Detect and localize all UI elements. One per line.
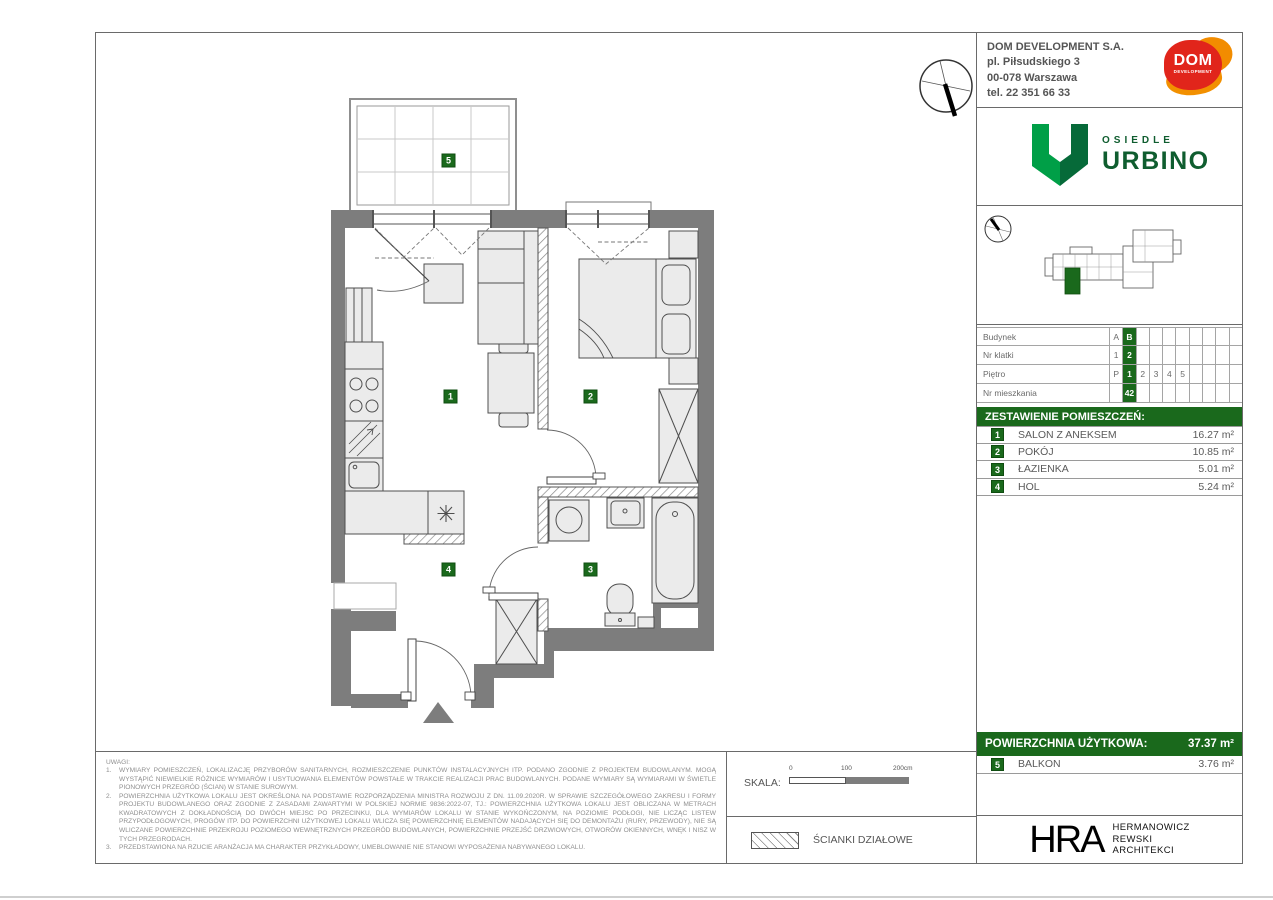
north-compass-icon <box>914 53 978 123</box>
bathtub <box>652 498 698 603</box>
unit-cell <box>1175 328 1188 345</box>
unit-cell: 3 <box>1149 365 1162 383</box>
badge-lazienka: 3 <box>584 563 597 576</box>
scale-label: SKALA: <box>744 777 781 789</box>
unit-cell <box>1149 384 1162 402</box>
document-frame: 1 2 3 4 5 DOM DEVELOPMENT S.A. pl. Piłsu… <box>95 32 1243 864</box>
badge-hol: 4 <box>442 563 455 576</box>
bedroom-window <box>566 210 649 228</box>
dom-development-logo-icon: DOM DEVELOPMENT <box>1162 37 1234 99</box>
svg-text:3: 3 <box>588 565 593 575</box>
architect-line: ARCHITEKCI <box>1113 845 1190 856</box>
company-info-box: DOM DEVELOPMENT S.A. pl. Piłsudskiego 3 … <box>977 33 1242 108</box>
toilet <box>605 584 654 628</box>
kitchen-stove <box>345 369 383 421</box>
floor-plan: 1 2 3 4 5 <box>321 91 721 731</box>
unit-cell <box>1149 328 1162 345</box>
unit-cell <box>1202 346 1215 364</box>
unit-info-label: Budynek <box>977 328 1109 345</box>
unit-cell: 2 <box>1136 365 1149 383</box>
unit-cell-active: B <box>1122 328 1135 345</box>
project-name: URBINO <box>1102 147 1210 176</box>
badge-pokoj: 2 <box>584 390 597 403</box>
notes-box: UWAGI: 1. WYMIARY POMIESZCZEŃ, LOKALIZAC… <box>96 751 727 863</box>
dining-table <box>488 338 534 427</box>
room-number-badge: 5 <box>991 758 1004 771</box>
room-area: 16.27 m² <box>1193 429 1234 441</box>
unit-cell <box>1162 346 1175 364</box>
unit-cell <box>1202 365 1215 383</box>
unit-cell-active: 1 <box>1122 365 1135 383</box>
room-name: POKÓJ <box>1018 446 1193 458</box>
kitchen-drainer <box>345 421 383 458</box>
room-name: SALON Z ANEKSEM <box>1018 429 1193 441</box>
unit-cell <box>1136 328 1149 345</box>
unit-cell <box>1229 328 1242 345</box>
unit-cell <box>1189 384 1202 402</box>
building-floor-minimap <box>1015 222 1231 314</box>
room-number-badge: 4 <box>991 480 1004 493</box>
room-row-pokoj: 2 POKÓJ 10.85 m² <box>977 444 1242 462</box>
architect-line: HERMANOWICZ <box>1113 822 1190 833</box>
svg-text:2: 2 <box>588 392 593 402</box>
title-block: DOM DEVELOPMENT S.A. pl. Piłsudskiego 3 … <box>976 33 1242 863</box>
usable-area-value: 37.37 m² <box>1188 738 1234 750</box>
unit-cell <box>1109 384 1122 402</box>
company-phone: tel. 22 351 66 33 <box>987 86 1124 101</box>
scale-bar <box>789 777 909 784</box>
room-name: BALKON <box>1018 758 1198 770</box>
unit-info-label: Nr mieszkania <box>977 384 1109 402</box>
balcony-door-window <box>373 210 491 228</box>
unit-cell: P <box>1109 365 1122 383</box>
unit-cell <box>1202 328 1215 345</box>
room-row-salon: 1 SALON Z ANEKSEM 16.27 m² <box>977 426 1242 444</box>
mini-compass-icon <box>983 214 1013 244</box>
unit-cell <box>1149 346 1162 364</box>
unit-cell <box>1175 384 1188 402</box>
page-bottom-divider <box>0 896 1273 898</box>
room-area: 5.24 m² <box>1198 481 1234 493</box>
wall-recess <box>661 608 698 628</box>
unit-cell: A <box>1109 328 1122 345</box>
room-number-badge: 2 <box>991 445 1004 458</box>
legend-box: ŚCIANKI DZIAŁOWE <box>727 816 976 863</box>
room-number-badge: 3 <box>991 463 1004 476</box>
room-name: HOL <box>1018 481 1198 493</box>
architect-logo: HRA HERMANOWICZ REWSKI ARCHITEKCI <box>977 815 1242 863</box>
project-logo-box: OSIEDLE URBINO <box>977 108 1242 206</box>
unit-cell <box>1215 346 1228 364</box>
unit-cell-active: 2 <box>1122 346 1135 364</box>
unit-info-label: Piętro <box>977 365 1109 383</box>
unit-cell <box>1162 384 1175 402</box>
unit-cell: 5 <box>1175 365 1188 383</box>
unit-cell <box>1229 384 1242 402</box>
project-label: OSIEDLE <box>1102 135 1210 146</box>
rooms-table-header: ZESTAWIENIE POMIESZCZEŃ: <box>977 407 1242 426</box>
company-city: 00-078 Warszawa <box>987 71 1124 86</box>
coffee-table <box>424 264 463 303</box>
usable-area-label: POWIERZCHNIA UŻYTKOWA: <box>985 738 1147 750</box>
svg-text:5: 5 <box>446 156 451 166</box>
floorplan-sheet: 1 2 3 4 5 DOM DEVELOPMENT S.A. pl. Piłsu… <box>0 0 1273 900</box>
partition-hatch-swatch <box>751 832 799 849</box>
unit-cell <box>1189 328 1202 345</box>
room-area: 5.01 m² <box>1198 463 1234 475</box>
usable-area-bar: POWIERZCHNIA UŻYTKOWA: 37.37 m² <box>977 732 1242 756</box>
room-row-lazienka: 3 ŁAZIENKA 5.01 m² <box>977 461 1242 479</box>
unit-cell <box>1215 365 1228 383</box>
note-item: 3. PRZEDSTAWIONA NA RZUCIE ARANŻACJA MA … <box>106 844 716 853</box>
badge-salon: 1 <box>444 390 457 403</box>
unit-info-row-klatka: Nr klatki 1 2 <box>977 346 1242 365</box>
scale-box: SKALA: 0 100 200cm <box>727 751 976 816</box>
sofa <box>478 231 538 344</box>
architect-line: REWSKI <box>1113 834 1190 845</box>
balcony <box>350 99 516 211</box>
unit-cell <box>1215 328 1228 345</box>
unit-cell <box>1162 328 1175 345</box>
unit-cell <box>1136 384 1149 402</box>
legend-label: ŚCIANKI DZIAŁOWE <box>813 834 913 846</box>
note-item: 2. POWIERZCHNIA UŻYTKOWA LOKALU JEST OKR… <box>106 793 716 844</box>
unit-cell <box>1136 346 1149 364</box>
unit-info-row-pietro: Piętro P 1 2 3 4 5 <box>977 365 1242 384</box>
unit-cell <box>1189 365 1202 383</box>
urbino-logo-icon <box>1032 124 1088 186</box>
kitchen-counter <box>345 342 383 369</box>
unit-info-table: Budynek A B Nr klatki <box>977 327 1242 407</box>
rooms-table: 1 SALON Z ANEKSEM 16.27 m² 2 POKÓJ 10.85… <box>977 426 1242 496</box>
building-locator-box <box>977 206 1242 325</box>
kitchen-cabinet <box>346 288 372 342</box>
dom-logo-text: DOM <box>1164 52 1222 70</box>
badge-balkon: 5 <box>442 154 455 167</box>
unit-cell: 1 <box>1109 346 1122 364</box>
unit-cell <box>1229 346 1242 364</box>
room-number-badge: 1 <box>991 428 1004 441</box>
unit-cell <box>1215 384 1228 402</box>
company-name: DOM DEVELOPMENT S.A. <box>987 40 1124 55</box>
unit-cell <box>1229 365 1242 383</box>
room-area: 3.76 m² <box>1198 758 1234 770</box>
bed <box>579 259 696 358</box>
highlighted-unit <box>1065 268 1080 294</box>
entrance-arrow <box>423 702 454 723</box>
unit-cell: 4 <box>1162 365 1175 383</box>
wall-niche <box>334 583 396 609</box>
notes-title: UWAGI: <box>106 759 716 766</box>
company-street: pl. Piłsudskiego 3 <box>987 55 1124 70</box>
note-item: 1. WYMIARY POMIESZCZEŃ, LOKALIZACJĘ PRZY… <box>106 767 716 793</box>
unit-info-label: Nr klatki <box>977 346 1109 364</box>
balcony-row: 5 BALKON 3.76 m² <box>977 756 1242 774</box>
room-area: 10.85 m² <box>1193 446 1234 458</box>
room-name: ŁAZIENKA <box>1018 463 1198 475</box>
svg-text:1: 1 <box>448 392 453 402</box>
svg-text:4: 4 <box>446 565 451 575</box>
washing-machine <box>549 500 589 541</box>
unit-info-row-budynek: Budynek A B <box>977 327 1242 346</box>
room-row-hol: 4 HOL 5.24 m² <box>977 479 1242 497</box>
architect-abbr: HRA <box>1029 821 1103 859</box>
dom-logo-subtext: DEVELOPMENT <box>1164 69 1222 74</box>
kitchen-sink <box>345 458 383 491</box>
unit-cell <box>1175 346 1188 364</box>
unit-cell-active: 42 <box>1122 384 1135 402</box>
unit-cell <box>1189 346 1202 364</box>
unit-cell <box>1202 384 1215 402</box>
unit-info-row-mieszkanie: Nr mieszkania 42 <box>977 384 1242 403</box>
